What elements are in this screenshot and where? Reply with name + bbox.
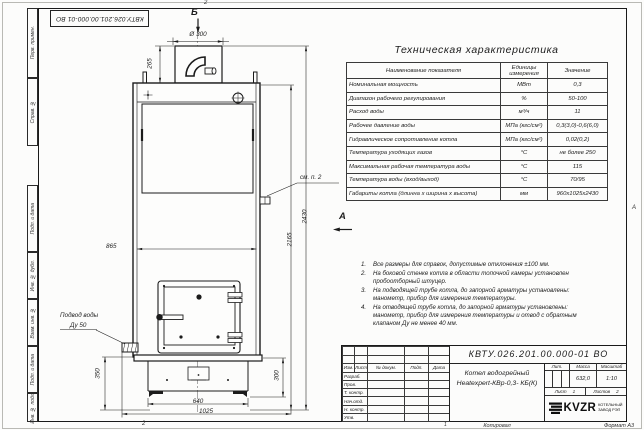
kvzr-logo-icon bbox=[549, 402, 562, 415]
grid-header-cell: Лист bbox=[355, 364, 368, 373]
role-empty-cell bbox=[405, 413, 429, 421]
revision-cell bbox=[405, 347, 429, 356]
product-name-line2: Heatexpert-КВр-0,3- КБ(К) bbox=[457, 379, 538, 389]
dim-base-height-left: 350 bbox=[95, 363, 102, 385]
title-block-signature-grid: Изм.Лист№ докум.Подп.ДатаРазраб.Пров.Т. … bbox=[342, 346, 450, 422]
callout-see-note-2: см. п. 2 bbox=[300, 174, 321, 181]
spec-row: Габариты котла (длинна х ширина х высота… bbox=[347, 187, 608, 201]
spec-cell: мм bbox=[501, 187, 548, 201]
rotated-doc-number-text: КВТУ.026.201.00.000-01 ВО bbox=[56, 15, 144, 22]
drawing-sheet: Перв. примен. Справ. № Подп. и дата Инв.… bbox=[0, 0, 644, 430]
note-item: 4.На отводящей трубе котла, до запорной … bbox=[361, 304, 593, 328]
role-row: Пров. bbox=[343, 380, 450, 388]
zone-mark-right: А bbox=[632, 205, 636, 211]
spec-cell: Рабочее давление воды bbox=[347, 119, 501, 133]
company-name: KVZR bbox=[564, 402, 597, 414]
revision-cell bbox=[343, 355, 355, 364]
lit-cell-2 bbox=[553, 371, 562, 388]
note-number: 2. bbox=[361, 270, 373, 286]
sheet-label: Лист bbox=[555, 389, 567, 394]
note-item: 3.На подводящей трубе котла, до запорной… bbox=[361, 287, 593, 303]
spec-row: Температура воды (вход/выход)°С70/95 bbox=[347, 174, 608, 188]
bottom-zone-1: 1 bbox=[444, 422, 447, 428]
product-name: Котел водогрейный Heatexpert-КВр-0,3- КБ… bbox=[449, 363, 545, 421]
scale-header: Масштаб bbox=[597, 363, 626, 371]
revision-cell bbox=[429, 347, 450, 356]
role-row: Разраб. bbox=[343, 372, 450, 380]
frame-field-vzam-inv: Взам. инв. № bbox=[27, 299, 38, 346]
sheets-value: 2 bbox=[616, 389, 619, 394]
role-empty-cell bbox=[368, 380, 405, 388]
role-empty-cell bbox=[368, 389, 405, 397]
sheets-cell: Листов 2 bbox=[586, 388, 626, 396]
role-row: Утв. bbox=[343, 413, 450, 421]
title-block: Изм.Лист№ докум.Подп.ДатаРазраб.Пров.Т. … bbox=[341, 345, 627, 422]
revision-cell bbox=[355, 347, 368, 356]
spec-table: Наименование показателя Единицы измерени… bbox=[346, 62, 608, 201]
frame-field-sprav-no: Справ. № bbox=[27, 78, 38, 146]
company-subtitle-2: ЗАВОД РЭП bbox=[598, 408, 622, 413]
dim-height-body: 2165 bbox=[287, 229, 294, 251]
sheet-value: 1 bbox=[573, 389, 576, 394]
spec-cell: МПа (кгс/см²) bbox=[501, 133, 548, 147]
spec-header-row: Наименование показателя Единицы измерени… bbox=[347, 63, 608, 79]
spec-cell: 0,3 bbox=[548, 79, 608, 93]
role-empty-cell bbox=[368, 413, 405, 421]
frame-field-perv-primen: Перв. примен. bbox=[27, 8, 38, 78]
spec-table-title: Техническая характеристика bbox=[346, 44, 607, 56]
revision-cell bbox=[355, 355, 368, 364]
role-empty-cell bbox=[368, 372, 405, 380]
water-supply-label-line2: Ду 50 bbox=[70, 322, 86, 329]
spec-row: Расход водым³/ч11 bbox=[347, 106, 608, 120]
role-row: Нач.отд. bbox=[343, 397, 450, 405]
role-empty-cell bbox=[429, 397, 450, 405]
role-row: Н. контр. bbox=[343, 405, 450, 413]
note-text: Все размеры для справок, допустимые откл… bbox=[373, 261, 593, 269]
company-logo: KVZR КОТЕЛЬНЫЙ ЗАВОД РЭП bbox=[545, 396, 626, 421]
section-b-label: Б bbox=[191, 7, 198, 18]
spec-cell: Диапазон рабочего регулирования bbox=[347, 92, 501, 106]
spec-cell: % bbox=[501, 92, 548, 106]
dim-body-width: 865 bbox=[106, 243, 117, 250]
spec-cell: 115 bbox=[548, 160, 608, 174]
spec-cell: °С bbox=[501, 174, 548, 188]
frame-field-label: Подп. и дата bbox=[30, 203, 36, 234]
role-empty-cell bbox=[405, 389, 429, 397]
dim-chimney-height: 265 bbox=[147, 53, 154, 75]
role-empty-cell bbox=[368, 397, 405, 405]
frame-field-label: Подп. и дата bbox=[30, 354, 36, 385]
note-text: На отводящей трубе котла, до запорной ар… bbox=[373, 304, 593, 328]
note-item: 1.Все размеры для справок, допустимые от… bbox=[361, 261, 593, 269]
product-name-line1: Котел водогрейный bbox=[465, 369, 530, 379]
frame-field-label: Инв. № подл. bbox=[30, 392, 36, 424]
rotated-doc-number-stamp: КВТУ.026.201.00.000-01 ВО bbox=[50, 10, 149, 27]
zone-mark-bottom: 2 bbox=[142, 421, 145, 427]
revision-cell bbox=[368, 347, 405, 356]
note-text: На боковой стенке котла в области топочн… bbox=[373, 270, 593, 286]
spec-cell: Номинальная мощность bbox=[347, 79, 501, 93]
frame-field-podp-data-1: Подп. и дата bbox=[27, 185, 38, 252]
note-text: На подводящей трубе котла, до запорной а… bbox=[373, 287, 593, 303]
frame-field-podp-data-2: Подп. и дата bbox=[27, 346, 38, 393]
view-a-label: А bbox=[339, 211, 346, 222]
role-empty-cell bbox=[429, 380, 450, 388]
dim-base-height-right: 300 bbox=[274, 365, 281, 387]
spec-cell: 50-100 bbox=[548, 92, 608, 106]
spec-cell: °С bbox=[501, 160, 548, 174]
frame-field-label: Перв. примен. bbox=[30, 26, 36, 59]
sheets-label: Листов bbox=[593, 389, 610, 394]
role-row: Т. контр. bbox=[343, 389, 450, 397]
water-supply-label-line1: Подвод воды bbox=[60, 312, 98, 319]
spec-row: Гидравлическое сопротивление котлаМПа (к… bbox=[347, 133, 608, 147]
spec-cell: Габариты котла (длинна х ширина х высота… bbox=[347, 187, 501, 201]
note-number: 1. bbox=[361, 261, 373, 269]
role-empty-cell bbox=[405, 380, 429, 388]
grid-header-cell: Изм. bbox=[343, 364, 355, 373]
spec-row: Номинальная мощностьМВт0,3 bbox=[347, 79, 608, 93]
role-empty-cell bbox=[368, 405, 405, 413]
role-label: Пров. bbox=[343, 380, 368, 388]
revision-cell bbox=[368, 355, 405, 364]
frame-field-label: Инв. № дубл. bbox=[30, 260, 36, 291]
role-empty-cell bbox=[429, 413, 450, 421]
grid-header-cell: Дата bbox=[429, 364, 450, 373]
grid-header-cell: № докум. bbox=[368, 364, 405, 373]
spec-cell: Температура воды (вход/выход) bbox=[347, 174, 501, 188]
revision-row bbox=[343, 355, 450, 364]
role-label: Нач.отд. bbox=[343, 397, 368, 405]
grid-header-cell: Подп. bbox=[405, 364, 429, 373]
mass-header: Масса bbox=[570, 363, 597, 371]
doc-number: КВТУ.026.201.00.000-01 ВО bbox=[449, 346, 627, 364]
spec-header-units: Единицы измерения bbox=[501, 63, 548, 79]
role-empty-cell bbox=[429, 389, 450, 397]
frame-field-label: Справ. № bbox=[30, 100, 36, 123]
title-block-right-section: Лит. Масса Масштаб 632,0 1:10 Лист 1 Лис… bbox=[545, 363, 626, 421]
spec-cell: 70/95 bbox=[548, 174, 608, 188]
role-empty-cell bbox=[405, 397, 429, 405]
scale-value: 1:10 bbox=[597, 371, 626, 388]
spec-cell: °С bbox=[501, 146, 548, 160]
spec-cell: 11 bbox=[548, 106, 608, 120]
frame-field-label: Взам. инв. № bbox=[30, 307, 36, 339]
spec-row: Рабочее давление водыМПа (кгс/см²)0,3(3,… bbox=[347, 119, 608, 133]
copied-label: Копировал bbox=[462, 423, 532, 429]
spec-row: Диапазон рабочего регулирования%50-100 bbox=[347, 92, 608, 106]
spec-header-value: Значение bbox=[548, 63, 608, 79]
spec-cell: МВт bbox=[501, 79, 548, 93]
spec-cell: 960х1025х2430 bbox=[548, 187, 608, 201]
spec-cell: м³/ч bbox=[501, 106, 548, 120]
spec-cell: Максимальная рабочая температура воды bbox=[347, 160, 501, 174]
note-number: 3. bbox=[361, 287, 373, 303]
mass-value: 632,0 bbox=[570, 371, 597, 388]
role-label: Н. контр. bbox=[343, 405, 368, 413]
grid-header-row: Изм.Лист№ докум.Подп.Дата bbox=[343, 364, 450, 373]
format-label: Формат А3 bbox=[604, 423, 634, 429]
note-number: 4. bbox=[361, 304, 373, 328]
role-empty-cell bbox=[405, 405, 429, 413]
dim-overall-width: 1025 bbox=[186, 408, 226, 415]
spec-cell: 0,02(0,2) bbox=[548, 133, 608, 147]
spec-header-name: Наименование показателя bbox=[347, 63, 501, 79]
spec-cell: Гидравлическое сопротивление котла bbox=[347, 133, 501, 147]
spec-row: Максимальная рабочая температура воды°С1… bbox=[347, 160, 608, 174]
revision-cell bbox=[405, 355, 429, 364]
lit-header: Лит. bbox=[545, 363, 570, 371]
role-label: Разраб. bbox=[343, 372, 368, 380]
role-empty-cell bbox=[429, 372, 450, 380]
lit-cell-1 bbox=[545, 371, 553, 388]
sheet-cell: Лист 1 bbox=[545, 388, 586, 396]
lit-cell-3 bbox=[562, 371, 570, 388]
role-empty-cell bbox=[429, 405, 450, 413]
spec-cell: Расход воды bbox=[347, 106, 501, 120]
spec-row: Температура уходящих газов°Сне более 250 bbox=[347, 146, 608, 160]
role-label: Утв. bbox=[343, 413, 368, 421]
note-item: 2.На боковой стенке котла в области топо… bbox=[361, 270, 593, 286]
zone-mark-top: 2 bbox=[204, 0, 207, 6]
revision-cell bbox=[343, 347, 355, 356]
spec-cell: МПа (кгс/см²) bbox=[501, 119, 548, 133]
notes-list: 1.Все размеры для справок, допустимые от… bbox=[361, 261, 593, 329]
frame-field-inv-dubl: Инв. № дубл. bbox=[27, 252, 38, 299]
dim-chimney-diameter: Ø 300 bbox=[176, 31, 220, 38]
frame-field-inv-podl: Инв. № подл. bbox=[27, 393, 38, 422]
role-empty-cell bbox=[405, 372, 429, 380]
dim-base-width: 640 bbox=[180, 398, 216, 405]
spec-cell: Температура уходящих газов bbox=[347, 146, 501, 160]
role-label: Т. контр. bbox=[343, 389, 368, 397]
spec-cell: не более 250 bbox=[548, 146, 608, 160]
dim-height-total: 2430 bbox=[302, 206, 309, 228]
revision-row bbox=[343, 347, 450, 356]
revision-cell bbox=[429, 355, 450, 364]
spec-cell: 0,3(3,0)-0,6(6,0) bbox=[548, 119, 608, 133]
